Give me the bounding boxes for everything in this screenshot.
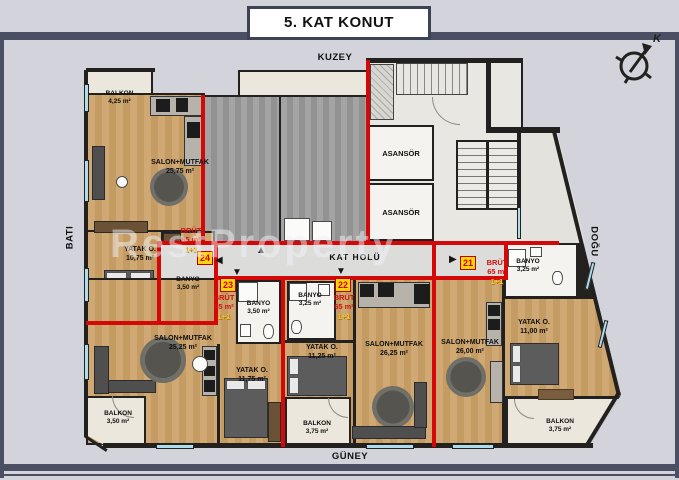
brut-area: 65 m²: [168, 235, 214, 244]
apt23-side-table: [192, 356, 208, 372]
apt22-rug: [372, 386, 414, 428]
core-north-wall: [366, 58, 523, 63]
apt21-bed-rug: [538, 389, 574, 400]
unit-23-info: BRÜT 65 m² 1+1: [202, 293, 246, 321]
toilet-icon: [263, 324, 274, 339]
entry-arrow-down-icon: ▼: [232, 268, 242, 278]
apt22-sofa-side: [414, 382, 427, 428]
stair-step-wall: [486, 127, 560, 133]
room-area: 4,25 m²: [92, 98, 147, 106]
room-area: 11,00 m²: [498, 327, 570, 336]
brut-label: BRÜT: [477, 258, 517, 267]
unit-24-info: BRÜT 65 m² 1+1: [168, 226, 214, 254]
pillow: [512, 365, 521, 383]
window: [517, 207, 521, 239]
floor-plan-page: 5. KAT KONUT K: [0, 0, 679, 480]
unit-22-badge: 22: [335, 278, 351, 292]
boundary-line: [281, 276, 285, 447]
room-area: 26,25 m²: [356, 349, 432, 358]
elevator-1-label: ASANSÖR: [368, 149, 434, 159]
sink-icon: [530, 247, 542, 257]
apt23-wardrobe: [268, 402, 281, 442]
room-area: 11,25 m²: [286, 352, 358, 361]
window: [452, 444, 494, 449]
room-name: SALON+MUTFAK: [432, 338, 508, 347]
room-label-a21-yatak: YATAK O. 11,00 m²: [498, 318, 570, 336]
room-area: 10,75 m²: [102, 254, 178, 263]
unit-21-badge: 21: [460, 256, 476, 270]
boundary-line-hall-bottom: [214, 276, 508, 280]
room-label-a23-yatak: YATAK O. 11,75 m²: [214, 366, 290, 384]
frame-bottom-line: [0, 474, 679, 476]
stove-icon: [488, 305, 500, 316]
unit-24-badge: 24: [197, 251, 213, 265]
brut-area: 65 m²: [477, 267, 517, 276]
compass-icon: K: [608, 30, 666, 88]
room-name: YATAK O.: [214, 366, 290, 375]
stove-icon: [156, 99, 170, 112]
apt23-sofa-chaise: [108, 380, 156, 393]
frame-bottom-bar: [0, 464, 679, 471]
entry-arrow-down-icon: ▼: [336, 267, 346, 277]
apt24-wardrobe: [94, 221, 148, 233]
fridge-icon: [414, 284, 430, 304]
room-label-a22-balkon: BALKON 3,75 m²: [291, 420, 343, 436]
toilet-icon: [291, 320, 302, 334]
stair-rail: [486, 140, 489, 210]
appliance-box: [312, 221, 332, 241]
room-name: BALKON: [291, 420, 343, 428]
pillow: [289, 377, 299, 394]
boundary-line: [86, 321, 218, 325]
shaft-hatch: [370, 64, 394, 120]
frame-left-bar: [0, 32, 4, 478]
brut-label: BRÜT: [202, 293, 246, 302]
frame-right-bar: [675, 32, 679, 478]
room-area: 3,50 m²: [166, 284, 210, 292]
north-exterior-wall: [86, 68, 155, 72]
direction-north: KUZEY: [300, 52, 370, 63]
unit-type: 1+1: [477, 277, 517, 286]
room-name: YATAK O.: [102, 245, 178, 254]
window: [366, 444, 414, 449]
stair-east-wall-upper: [486, 60, 491, 131]
page-title: 5. KAT KONUT: [247, 6, 431, 40]
stair-upper-flight: [396, 63, 468, 95]
room-label-a22-yatak: YATAK O. 11,25 m²: [286, 343, 358, 361]
room-name: YATAK O.: [286, 343, 358, 352]
window: [84, 84, 89, 112]
room-label-a22-salon: SALON+MUTFAK 26,25 m²: [356, 340, 432, 358]
elevator-2-label: ASANSÖR: [368, 208, 434, 218]
direction-south: GÜNEY: [318, 451, 382, 462]
hall-label: KAT HOLÜ: [320, 252, 390, 262]
brut-area: 65 m²: [322, 302, 366, 311]
direction-east: DOĞU: [589, 220, 600, 264]
room-area: 11,75 m²: [214, 375, 290, 384]
unit-21-info: BRÜT 65 m² 1+1: [477, 258, 517, 286]
window: [156, 444, 194, 449]
room-area: 3,75 m²: [533, 426, 587, 434]
apt24-sofa: [92, 146, 105, 200]
stair-east-wall-lower: [517, 133, 521, 211]
apt24-side-table: [116, 176, 128, 188]
brut-area: 65 m²: [202, 302, 246, 311]
compass-north-label: K: [653, 33, 662, 45]
room-area: 25,25 m²: [140, 343, 226, 352]
apt23-sofa: [94, 346, 109, 394]
room-name: BANYO: [166, 276, 210, 284]
room-label-a23-salon: SALON+MUTFAK 25,25 m²: [140, 334, 226, 352]
page-title-text: 5. KAT KONUT: [284, 14, 394, 31]
room-name: BALKON: [533, 418, 587, 426]
window: [84, 344, 89, 380]
room-label-a24-banyo: BANYO 3,50 m²: [166, 276, 210, 292]
sink-icon: [240, 324, 251, 337]
appliance-box: [284, 218, 310, 241]
unit-23-badge: 23: [220, 278, 236, 292]
direction-west: BATI: [65, 216, 76, 260]
room-label-a24-balkon: BALKON 4,25 m²: [92, 90, 147, 106]
sink-icon: [378, 283, 394, 297]
apt21-rug: [446, 357, 486, 397]
window: [84, 268, 89, 302]
brut-label: BRÜT: [322, 293, 366, 302]
room-label-a23-balkon: BALKON 3,50 m²: [92, 410, 144, 426]
room-label-a24-salon: SALON+MUTFAK 25,75 m²: [140, 158, 220, 176]
brut-label: BRÜT: [168, 226, 214, 235]
unit-22-info: BRÜT 65 m² 1+1: [322, 293, 366, 321]
room-label-a21-salon: SALON+MUTFAK 26,00 m²: [432, 338, 508, 356]
room-name: SALON+MUTFAK: [356, 340, 432, 349]
room-name: YATAK O.: [498, 318, 570, 327]
window: [84, 160, 89, 202]
entry-arrow-right-icon: ▶: [449, 255, 457, 265]
room-name: SALON+MUTFAK: [140, 158, 220, 167]
room-area: 3,50 m²: [92, 418, 144, 426]
room-area: 25,75 m²: [140, 167, 220, 176]
room-label-a24-yatak: YATAK O. 10,75 m²: [102, 245, 178, 263]
room-name: SALON+MUTFAK: [140, 334, 226, 343]
apt23-room-divider: [217, 344, 220, 445]
oven-icon: [187, 122, 200, 138]
room-name: BALKON: [92, 410, 144, 418]
entry-arrow-up-icon: ▲: [256, 246, 266, 256]
apt21-sideboard: [490, 361, 503, 403]
room-label-a21-balkon: BALKON 3,75 m²: [533, 418, 587, 434]
pillow: [512, 345, 521, 363]
entry-arrow-left-icon: ◀: [215, 256, 223, 266]
apt21-divider-h1: [504, 296, 621, 299]
west-exterior-wall: [84, 70, 88, 437]
room-name: BALKON: [92, 90, 147, 98]
toilet-icon: [552, 271, 563, 285]
unit-type: 1+1: [202, 312, 246, 321]
room-area: 26,00 m²: [432, 347, 508, 356]
unit-type: 1+1: [322, 312, 366, 321]
room-area: 3,75 m²: [291, 428, 343, 436]
sink-icon: [176, 98, 188, 112]
